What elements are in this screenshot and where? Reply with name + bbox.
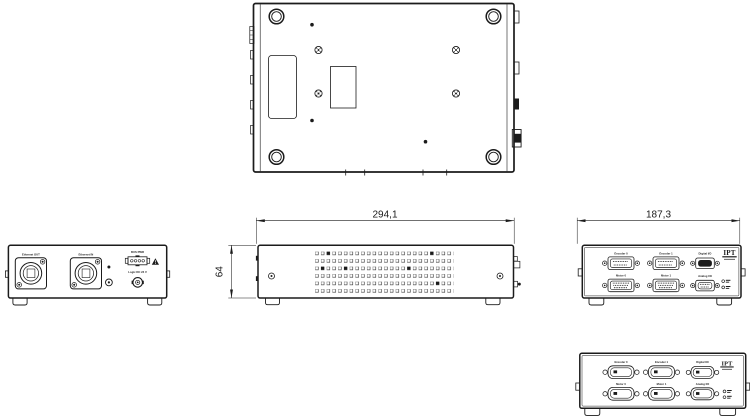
- body-width-dimension: 294,1: [372, 210, 397, 221]
- foot-bottom-right: [486, 150, 501, 165]
- analog-io-label: Analog I/O: [698, 274, 713, 278]
- top-view-outline: [254, 4, 515, 173]
- motor1-connector: [643, 387, 679, 400]
- status-led-row: [723, 390, 732, 393]
- top-view: [250, 4, 521, 176]
- panel-width-dimension: 187,3: [646, 210, 671, 221]
- brand-logo-text: IPT: [721, 360, 733, 367]
- status-led: [107, 266, 110, 269]
- motor1-label: Motor 1: [661, 274, 671, 278]
- encoder1-connector: [648, 257, 685, 270]
- encoder1-connector: [643, 366, 679, 379]
- digital-io-label: Digital I/O: [699, 252, 713, 256]
- status-led-row: [722, 280, 731, 283]
- motor1-label: Motor 1: [657, 382, 667, 386]
- encoder0-label: Encoder 0: [614, 251, 628, 255]
- rubber-foot-right: [148, 298, 162, 305]
- rubber-foot-left: [266, 298, 280, 305]
- digital-io-connector: [686, 366, 719, 378]
- vent-grid: [315, 252, 454, 294]
- warning-triangle-icon: [152, 258, 159, 265]
- rubber-foot-right: [717, 298, 732, 305]
- status-led-row: [723, 396, 732, 399]
- cover-screw: [315, 90, 322, 97]
- ethernet-out-label: Ethernet OUT: [22, 253, 40, 257]
- analog-io-connector: [691, 280, 720, 291]
- ethernet-in-label: Ethernet IN: [79, 253, 94, 257]
- encoder0-connector: [603, 257, 640, 270]
- dimension-body-height: 64: [214, 245, 256, 298]
- digital-io-label: Digital I/O: [696, 360, 709, 364]
- chassis-screw: [424, 140, 428, 144]
- logic-power-jack: [132, 278, 144, 288]
- motor0-connector: [603, 387, 639, 400]
- side-screw-right-center: [499, 275, 501, 277]
- rear-panel-view: Ethernet OUT Ethernet IN BUS PWR Logic D…: [5, 245, 169, 305]
- cover-screw: [452, 90, 459, 97]
- io-panel-view-2: Encoder 0 Encoder 1 Digital I/O Motor 0 …: [576, 353, 750, 415]
- cover-screw: [315, 46, 322, 53]
- motor0-label: Motor 0: [616, 382, 626, 386]
- ethernet-out-connector: [15, 258, 46, 289]
- bus-pwr-connector: [125, 255, 149, 266]
- ethernet-in-connector: [70, 258, 101, 289]
- technical-drawing-canvas: 294,1 64: [0, 0, 750, 418]
- encoder1-label: Encoder 1: [655, 360, 668, 364]
- base-cutout-left: [269, 56, 297, 119]
- motor0-connector: [603, 279, 640, 292]
- rubber-foot-right: [720, 408, 736, 415]
- body-height-dimension: 64: [214, 266, 225, 278]
- status-led-row: [722, 286, 731, 289]
- rubber-foot-right: [486, 298, 500, 305]
- motor0-label: Motor 0: [616, 274, 626, 278]
- rubber-foot-left: [585, 408, 600, 415]
- analog-io-connector: [686, 388, 719, 400]
- reset-button-center: [108, 281, 110, 283]
- side-view: 294,1 64: [214, 210, 521, 305]
- io-panel-view: 187,3 Encoder 0 Encoder 1 Digital I/O Mo…: [577, 210, 745, 305]
- enclosure-drawing: 294,1 64: [0, 0, 750, 418]
- rubber-foot-left: [13, 298, 27, 305]
- brand-logo-text: IPT: [723, 249, 735, 257]
- left-edge-tab: [256, 276, 258, 281]
- encoder0-connector: [603, 366, 639, 379]
- chassis-screw: [310, 119, 314, 123]
- foot-top-left: [269, 9, 284, 24]
- side-screw-left-center: [271, 275, 273, 277]
- foot-top-right: [486, 9, 501, 24]
- brand-logo: IPT: [722, 249, 736, 260]
- digital-io-connector: [691, 258, 720, 269]
- rubber-foot-left: [589, 298, 604, 305]
- encoder1-label: Encoder 1: [659, 251, 673, 255]
- bus-pwr-label: BUS PWR: [131, 250, 144, 254]
- foot-bottom-left: [269, 150, 284, 165]
- motor1-connector: [648, 279, 685, 292]
- analog-io-label: Analog I/O: [696, 382, 709, 386]
- logic-supply-label: Logic DC 24 V: [128, 270, 147, 274]
- base-cutout-center: [331, 67, 357, 109]
- dimension-panel-width: 187,3: [577, 210, 740, 244]
- dimension-body-width: 294,1: [256, 210, 514, 244]
- cover-screw: [452, 46, 459, 53]
- left-edge-tab: [256, 256, 258, 261]
- chassis-screw: [310, 23, 314, 27]
- right-edge-fittings: [514, 257, 521, 287]
- brand-logo: IPT: [720, 360, 733, 369]
- encoder0-label: Encoder 0: [615, 360, 628, 364]
